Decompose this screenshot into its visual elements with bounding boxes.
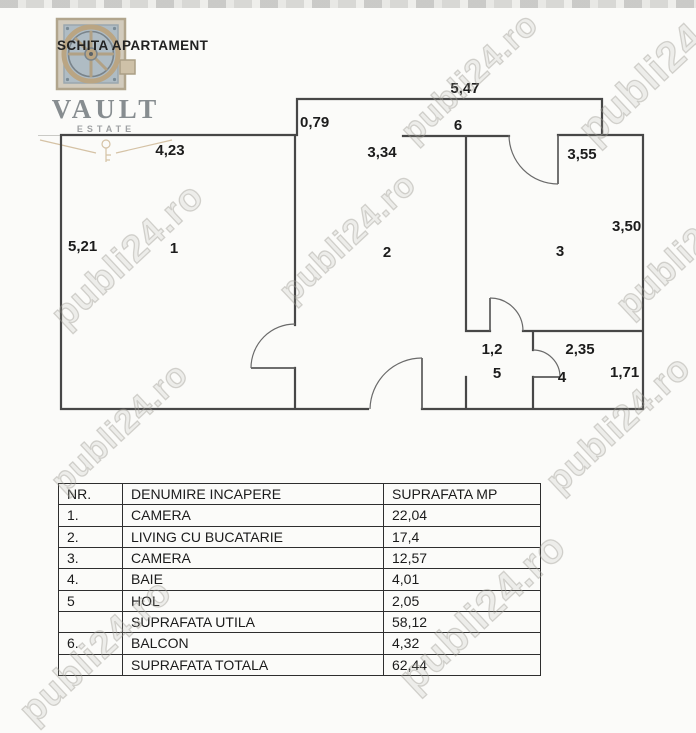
dimension-labels: 5,47 0,79 4,23 3,34 3,55 3,50 5,21 1,2 2… [68, 80, 641, 381]
dim-label-room1-height: 5,21 [68, 238, 97, 255]
cell-name: CAMERA [123, 547, 384, 568]
cell-area: 4,32 [384, 633, 541, 654]
room-label-2: 2 [383, 244, 391, 261]
table-row-total: SUPRAFATA TOTALA 62,44 [59, 654, 541, 675]
table-row: 4. BAIE 4,01 [59, 569, 541, 590]
cell-name: SUPRAFATA UTILA [123, 611, 384, 632]
cell-name: HOL [123, 590, 384, 611]
door-swing-arcs [251, 135, 560, 409]
col-header-area: SUPRAFATA MP [384, 484, 541, 505]
cell-area: 58,12 [384, 611, 541, 632]
table-header-row: NR. DENUMIRE INCAPERE SUPRAFATA MP [59, 484, 541, 505]
cell-name: LIVING CU BUCATARIE [123, 526, 384, 547]
door-leaves [251, 135, 560, 409]
cell-area: 2,05 [384, 590, 541, 611]
cell-nr [59, 654, 123, 675]
floor-plan: 5,47 0,79 4,23 3,34 3,55 3,50 5,21 1,2 2… [0, 0, 696, 475]
table-row: 2. LIVING CU BUCATARIE 17,4 [59, 526, 541, 547]
col-header-name: DENUMIRE INCAPERE [123, 484, 384, 505]
scanner-edge-artifact [0, 0, 696, 8]
dim-label-room1-width: 4,23 [155, 142, 184, 159]
dim-label-room3-height: 3,50 [612, 218, 641, 235]
dim-label-balcony-width: 5,47 [450, 80, 479, 97]
cell-nr: 3. [59, 547, 123, 568]
dim-label-room3-width: 3,55 [567, 146, 596, 163]
table-row: 6. BALCON 4,32 [59, 633, 541, 654]
scanned-floorplan-page: { "title": "SCHITA APARTAMENT", "logo": … [0, 0, 696, 720]
table-row: 5 HOL 2,05 [59, 590, 541, 611]
cell-nr: 1. [59, 505, 123, 526]
room-label-5: 5 [493, 365, 501, 382]
cell-nr: 5 [59, 590, 123, 611]
dim-label-balcony-depth: 0,79 [300, 114, 329, 131]
dim-label-hall-width: 1,2 [482, 341, 503, 358]
dim-label-bath-height: 1,71 [610, 364, 639, 381]
table-row: 3. CAMERA 12,57 [59, 547, 541, 568]
table-row-total: SUPRAFATA UTILA 58,12 [59, 611, 541, 632]
table-row: 1. CAMERA 22,04 [59, 505, 541, 526]
cell-nr: 2. [59, 526, 123, 547]
cell-nr [59, 611, 123, 632]
area-table: NR. DENUMIRE INCAPERE SUPRAFATA MP 1. CA… [58, 483, 541, 676]
cell-area: 22,04 [384, 505, 541, 526]
cell-area: 12,57 [384, 547, 541, 568]
cell-name: BAIE [123, 569, 384, 590]
page-title: SCHITA APARTAMENT [57, 38, 208, 53]
cell-name: CAMERA [123, 505, 384, 526]
dim-label-room2-width: 3,34 [367, 144, 397, 161]
cell-area: 4,01 [384, 569, 541, 590]
cell-nr: 4. [59, 569, 123, 590]
cell-area: 62,44 [384, 654, 541, 675]
dim-label-bath-width: 2,35 [565, 341, 594, 358]
cell-nr: 6. [59, 633, 123, 654]
room-label-3: 3 [556, 243, 564, 260]
cell-name: SUPRAFATA TOTALA [123, 654, 384, 675]
cell-area: 17,4 [384, 526, 541, 547]
room-label-6: 6 [454, 117, 462, 134]
col-header-nr: NR. [59, 484, 123, 505]
cell-name: BALCON [123, 633, 384, 654]
room-label-1: 1 [170, 240, 178, 257]
room-label-4: 4 [558, 369, 567, 386]
